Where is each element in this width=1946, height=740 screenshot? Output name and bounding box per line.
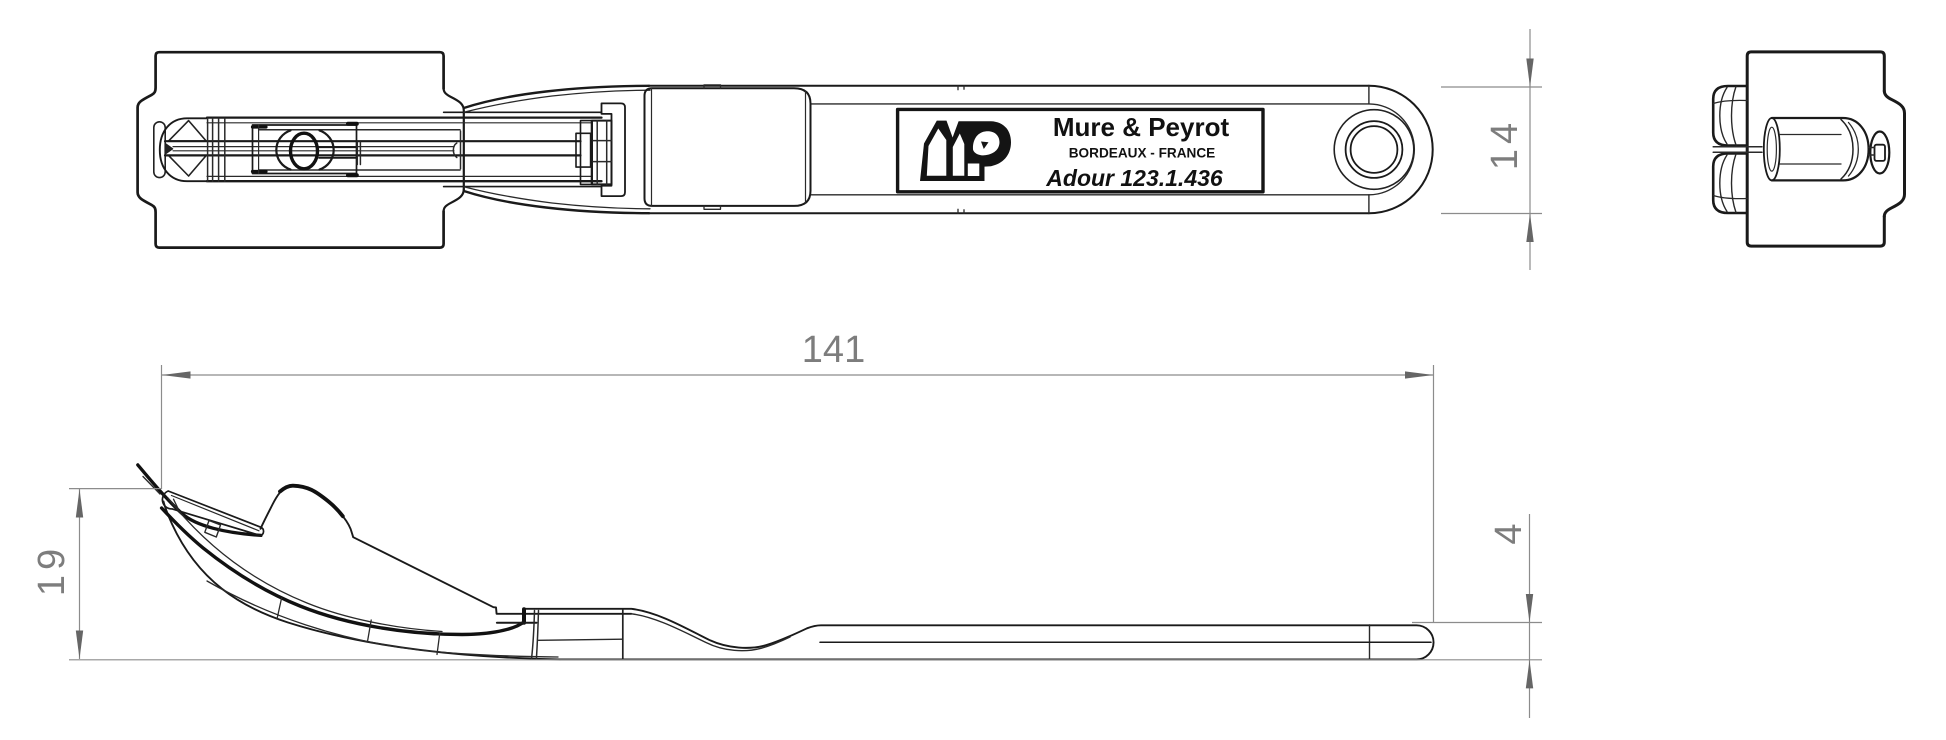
svg-text:Adour 123.1.436: Adour 123.1.436 (1045, 165, 1223, 191)
svg-text:14: 14 (1484, 118, 1526, 170)
svg-text:141: 141 (802, 329, 865, 371)
svg-text:BORDEAUX - FRANCE: BORDEAUX - FRANCE (1069, 146, 1216, 161)
svg-text:Mure & Peyrot: Mure & Peyrot (1053, 112, 1230, 142)
svg-text:19: 19 (31, 544, 73, 596)
svg-text:4: 4 (1488, 523, 1530, 544)
